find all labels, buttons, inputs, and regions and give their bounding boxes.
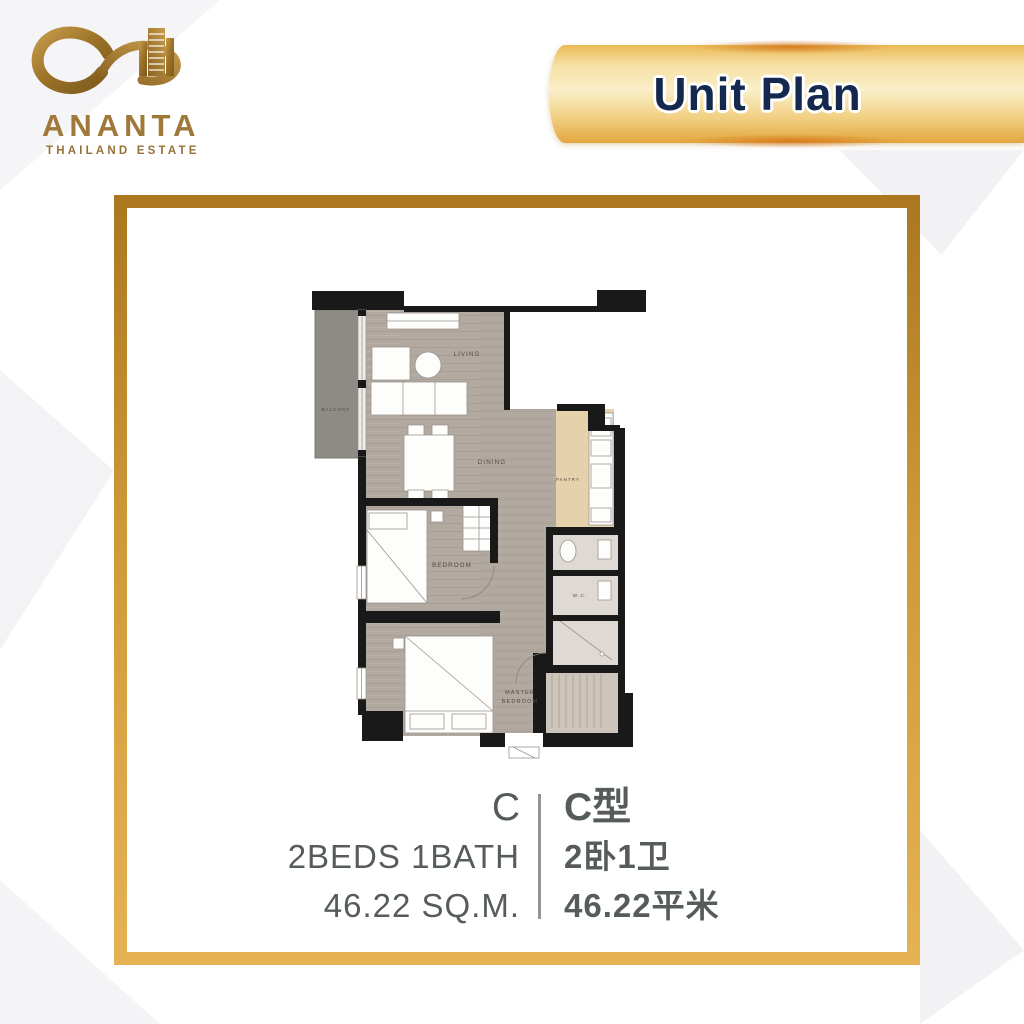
floor-plan: LIVING DINING BALCONY PANTRY BEDROOM W.C…: [300, 268, 660, 768]
entrance-door: [505, 733, 543, 758]
balcony-window: [358, 310, 366, 456]
armchair: [372, 347, 410, 380]
balcony-label: BALCONY: [322, 407, 351, 412]
dining-chair: [408, 425, 424, 436]
info-divider: [538, 794, 541, 919]
sofa: [371, 382, 467, 415]
unit-area-zh: 46.22平米: [564, 881, 894, 930]
toilet: [560, 540, 576, 562]
infinity-building-icon: [20, 10, 210, 110]
dining-chair: [432, 425, 448, 436]
sink: [598, 540, 611, 559]
page: { "header": { "logo": { "brand": "ANANTA…: [0, 0, 1024, 1024]
building-icon: [139, 28, 174, 76]
unit-beds-bath-en: 2BEDS 1BATH: [220, 832, 520, 881]
round-table: [415, 352, 441, 378]
pantry-label: PANTRY: [556, 477, 580, 482]
dining-table: [404, 435, 454, 491]
sink: [598, 581, 611, 600]
unit-area-en: 46.22 SQ.M.: [220, 881, 520, 930]
dining-label: DINING: [478, 459, 506, 466]
unit-info-en: C 2BEDS 1BATH 46.22 SQ.M.: [220, 784, 520, 930]
page-title: Unit Plan: [653, 67, 919, 121]
unit-beds-bath-zh: 2卧1卫: [564, 832, 894, 881]
bedroom-label: BEDROOM: [432, 562, 472, 569]
nightstand: [393, 638, 404, 649]
living-label: LIVING: [454, 351, 481, 358]
logo-tagline-text: THAILAND ESTATE: [46, 145, 226, 157]
foyer-floor: [546, 671, 618, 733]
balcony-floor: [315, 310, 358, 458]
master-bedroom-label-line1: MASTER: [505, 690, 535, 696]
bg-facet: [0, 370, 114, 650]
unit-plan-banner: Unit Plan: [549, 45, 1024, 143]
unit-type-en: C: [220, 784, 520, 832]
unit-info-zh: C型 2卧1卫 46.22平米: [564, 784, 894, 930]
master-bedroom-label-line2: BEDROOM: [502, 699, 539, 705]
unit-type-zh: C型: [564, 784, 894, 832]
nightstand: [431, 511, 443, 522]
logo-brand-text: ANANTA: [42, 108, 212, 144]
bg-facet: [920, 830, 1024, 1024]
wc-label: W.C.: [573, 593, 588, 599]
ananta-logo: ANANTA THAILAND ESTATE: [16, 8, 246, 168]
